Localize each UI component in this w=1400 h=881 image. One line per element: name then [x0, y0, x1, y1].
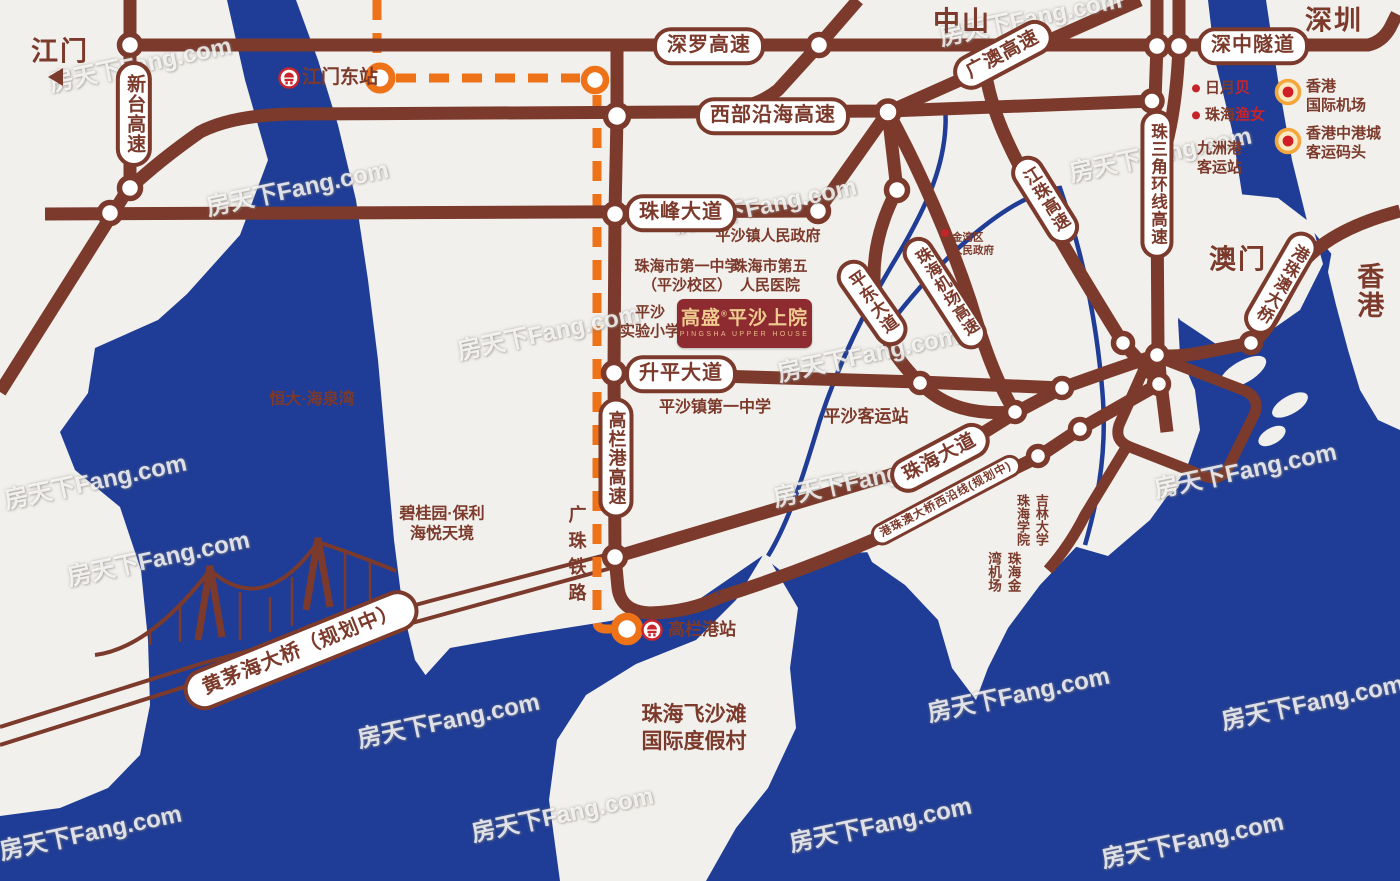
poi-line: 九洲港 — [1197, 139, 1242, 158]
road-label-shenzhong-tunnel: 深中隧道 — [1197, 27, 1309, 65]
junction — [1071, 420, 1090, 439]
poi-line: 平沙 — [620, 303, 680, 322]
poi-no1-middle-school: 珠海市第一中学 （平沙校区） — [634, 257, 739, 295]
road-ramp — [615, 557, 720, 613]
poi-text: 珠海渔女 — [1205, 105, 1265, 124]
poi-line: 珠海市第五 — [732, 257, 807, 276]
junction — [1147, 36, 1168, 57]
poi-line: 客运站 — [1197, 158, 1242, 177]
project-logo-subtitle: PINGSHA UPPER HOUSE — [680, 331, 810, 338]
poi-line: 国际机场 — [1306, 96, 1366, 115]
junction — [1148, 346, 1167, 365]
poi-pingsha-bus-station: 平沙客运站 — [824, 406, 909, 428]
project-logo: 高盛®平沙上院 PINGSHA UPPER HOUSE — [677, 299, 812, 348]
city-zhongshan: 中山 — [933, 5, 991, 40]
poi-biguiyuan-baoli: 碧桂园·保利 海悦天境 — [399, 505, 484, 546]
junction — [604, 363, 625, 384]
hk-ferry-icon — [1277, 130, 1300, 153]
junction — [606, 105, 629, 128]
poi-col: 珠海学院 — [1012, 494, 1031, 546]
project-logo-title: 高盛®平沙上院 — [681, 309, 808, 330]
junction — [100, 203, 121, 224]
poi-line: 金湾区 — [952, 232, 994, 245]
poi-riyuebei: 日月贝 — [1192, 78, 1250, 97]
junction — [120, 178, 141, 199]
poi-line: 客运码头 — [1306, 143, 1381, 162]
poi-text: 日月贝 — [1205, 78, 1250, 97]
road-label-prd-ring-expressway: 珠三角环线高速 — [1140, 110, 1173, 259]
city-shenzhen: 深圳 — [1305, 4, 1363, 39]
logo-name: 平沙上院 — [728, 308, 808, 329]
poi-col: 吉林大学 — [1031, 494, 1050, 546]
jiangmen-arrow-icon — [48, 68, 63, 86]
poi-jilin-university: 吉林大学 珠海学院 — [1012, 494, 1050, 546]
poi-line: 国际度假村 — [642, 729, 747, 756]
poi-part: 日月 — [1205, 79, 1235, 96]
poi-jinwan-airport: 珠海金 湾机场 — [983, 552, 1022, 593]
junction — [605, 204, 626, 225]
poi-line: 人民政府 — [952, 245, 994, 258]
station-logo-gaolangang — [643, 621, 662, 640]
poi-feishatan-resort: 珠海飞沙滩 国际度假村 — [642, 702, 747, 756]
junction — [911, 374, 930, 393]
poi-hengda-haiquanwan: 恒大·海泉湾 — [269, 390, 354, 410]
city-hongkong: 香港 — [1351, 262, 1386, 320]
poi-col: 湾机场 — [983, 552, 1003, 593]
poi-dot — [941, 229, 949, 237]
poi-jinwan-government: 金湾区 人民政府 — [952, 232, 994, 259]
poi-part-red: 贝 — [1235, 79, 1250, 96]
poi-zhuhai-yunv: 珠海渔女 — [1192, 105, 1265, 124]
station-jiangmen-east-label: 江门东站 — [302, 66, 378, 90]
junction — [1029, 447, 1048, 466]
poi-fifth-hospital: 珠海市第五 人民医院 — [732, 257, 807, 295]
poi-line: 实验小学 — [620, 322, 680, 341]
poi-line: 人民医院 — [732, 276, 807, 295]
junction — [1114, 334, 1133, 353]
station-logo-jiangmendong — [280, 69, 299, 88]
junction — [1053, 379, 1072, 398]
poi-line: 香港中港城 — [1306, 124, 1381, 143]
poi-dot — [1192, 111, 1200, 119]
poi-line: 香港 — [1306, 77, 1366, 96]
poi-hk-ferry-terminal: 香港中港城 客运码头 — [1306, 124, 1381, 162]
poi-jiuzhou-port: 九洲港 客运站 — [1197, 139, 1242, 177]
junction — [877, 101, 899, 123]
station-gaolangang: 高栏港站 — [668, 619, 736, 641]
junction — [1006, 403, 1025, 422]
label-guangzhu-railway: 广珠铁路 — [564, 505, 587, 609]
railway-node — [584, 69, 606, 91]
station-gaolangang-label: 高栏港站 — [668, 619, 736, 641]
road-label-zhufeng-avenue: 珠峰大道 — [625, 194, 737, 232]
road-label-shengping-avenue: 升平大道 — [625, 355, 737, 393]
poi-pingsha-no1-school: 平沙镇第一中学 — [659, 398, 771, 418]
junction — [1169, 36, 1190, 57]
road-label-gaolangang-expressway: 高栏港高速 — [598, 398, 633, 519]
poi-col: 珠海金 — [1003, 552, 1023, 593]
logo-registered-mark: ® — [721, 309, 728, 318]
poi-line: 碧桂园·保利 — [399, 505, 484, 525]
junction — [1242, 334, 1261, 353]
poi-line: （平沙校区） — [634, 276, 739, 295]
poi-pingsha-government: 平沙镇人民政府 — [715, 226, 820, 245]
map-canvas: 房天下Fang.com 房天下Fang.com 房天下Fang.com 房天下F… — [0, 0, 1400, 881]
road-label-xintai-expressway: 新台高速 — [116, 61, 152, 167]
logo-brand: 高盛 — [681, 308, 721, 329]
poi-part: 珠海 — [1205, 106, 1235, 123]
road-label-west-coastal-expressway: 西部沿海高速 — [696, 97, 850, 135]
poi-part-red: 渔女 — [1235, 106, 1265, 123]
poi-experimental-primary: 平沙 实验小学 — [620, 303, 680, 341]
road-label-shenluo-expressway: 深罗高速 — [653, 27, 765, 65]
poi-line: 珠海飞沙滩 — [642, 702, 747, 729]
poi-hk-airport: 香港 国际机场 — [1306, 77, 1366, 115]
poi-line: 珠海市第一中学 — [634, 257, 739, 276]
junction — [809, 35, 830, 56]
junction — [605, 547, 626, 568]
junction — [1150, 375, 1169, 394]
junction — [1142, 91, 1162, 111]
hk-airport-icon — [1277, 81, 1300, 104]
city-jiangmen: 江门 — [31, 35, 89, 70]
station-jiangmen-east: 江门东站 — [302, 66, 378, 90]
junction — [887, 180, 908, 201]
city-macau: 澳门 — [1209, 243, 1267, 278]
poi-dot — [1192, 84, 1200, 92]
poi-line: 海悦天境 — [399, 525, 484, 545]
railway-terminus — [615, 617, 640, 642]
